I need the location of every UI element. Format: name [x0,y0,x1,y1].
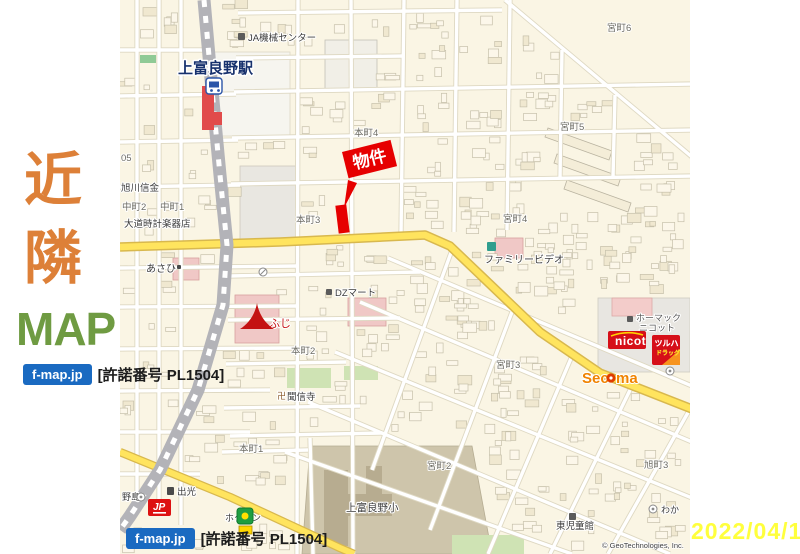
building [535,286,548,296]
poi-label: 旭川信金 [121,182,160,194]
building [238,152,249,158]
building [320,308,326,315]
building [650,281,659,285]
map-area [240,166,298,240]
building [471,216,480,225]
building [266,440,279,445]
building [302,127,309,134]
building [417,284,427,294]
building [534,157,540,161]
building [480,113,488,118]
building [418,114,426,119]
map-symbol-dot [652,508,655,511]
building [310,418,318,427]
license-row-top: f-map.jp [許諾番号 PL1504] [23,364,224,385]
building [623,253,631,262]
poi-icon [627,316,633,322]
district-label: 中町2 [122,201,146,213]
building [495,41,502,46]
poi-label: 東児童館 [556,520,594,532]
building [667,453,675,458]
building [481,16,493,25]
building [608,225,617,232]
street [613,95,615,178]
building [404,200,413,205]
building [446,316,458,320]
building [605,250,616,256]
map-area [140,55,156,63]
building [617,274,629,283]
building [615,488,621,493]
building [274,368,285,377]
license-row-bottom: f-map.jp [許諾番号 PL1504] [126,528,327,549]
nicot-logo-text: nicot [615,334,646,348]
building [508,411,519,416]
building [527,92,534,97]
building [463,323,477,332]
street [236,56,404,58]
building [571,113,580,120]
building [240,351,250,361]
district-label: 宮町3 [496,359,520,371]
poi-label: ホーマック [636,313,681,323]
building [415,299,426,306]
building [526,508,535,515]
building [199,196,210,204]
building [670,418,678,426]
building [335,382,347,386]
building [650,222,656,227]
building [372,20,378,27]
building [637,134,651,143]
building [143,8,157,16]
building [278,25,286,33]
building [621,449,628,453]
building [369,335,378,343]
building [627,213,641,222]
building [645,450,656,458]
building [625,483,631,488]
building [459,384,468,391]
poi-label: ファミリービデオ [484,253,564,266]
building [330,110,343,118]
fmap-badge: f-map.jp [23,364,92,385]
building [228,187,241,196]
building [322,349,329,354]
building [144,85,149,90]
building [403,391,413,399]
building [426,263,436,270]
building [362,349,371,357]
poi-label: DZマート [335,288,376,299]
building [488,57,501,63]
poi-label: 上富良野小 [346,501,399,514]
building [524,113,537,120]
building [538,229,549,233]
poi-icon [569,513,576,520]
building [460,46,468,52]
building [592,407,598,411]
poi-icon [167,487,174,495]
poi-label: JA機械センター [248,32,316,44]
building [149,324,154,330]
building [497,229,506,237]
poi-icon [238,33,245,40]
building [237,368,244,377]
building [658,419,665,424]
building [509,183,521,191]
building [189,173,196,178]
building [417,13,424,22]
building [411,276,424,284]
building [588,213,598,222]
building [144,126,155,135]
building [273,142,285,149]
building [486,183,493,191]
building [435,162,440,171]
building [455,304,467,308]
building [218,476,224,483]
building [300,98,313,105]
building [204,417,214,423]
poi-icon [177,265,181,269]
building [525,400,539,407]
fmap-badge-bottom: f-map.jp [126,528,195,549]
building [185,109,193,116]
building [551,52,559,59]
building [641,152,652,157]
building [261,22,271,31]
neighborhood-map: JA機械センターファミリービデオDZマートあさひ大道時計楽器店旭川信金卍聞信寺出… [120,0,690,554]
building [538,487,546,491]
building [592,107,601,113]
district-label: 本町1 [239,443,263,455]
map-symbol-dot [140,496,143,499]
street [351,0,353,554]
building [471,111,479,119]
title-map-word: MAP [16,306,115,352]
building [678,213,684,222]
building [384,93,395,100]
building [309,153,316,158]
building [602,101,613,106]
building [517,391,524,399]
building [230,40,244,47]
building [447,361,458,366]
building [441,93,446,102]
building [560,494,566,501]
building [631,394,640,401]
building [140,30,153,38]
building [423,123,428,132]
building [563,299,575,306]
building [392,425,398,432]
building [386,75,400,79]
building [652,494,661,503]
building [629,247,636,253]
building [669,163,678,170]
building [670,234,675,240]
building [307,326,317,330]
building [407,213,414,219]
train-station-icon [206,78,222,94]
building [275,476,285,485]
building [201,150,207,154]
building [661,256,667,263]
street [120,306,297,307]
building [161,253,174,258]
street [226,362,346,364]
building [302,202,314,206]
building [338,262,344,266]
building [256,478,265,485]
building [500,392,511,399]
building [257,353,264,359]
district-label: 宮町4 [503,213,527,225]
building [243,412,256,421]
building [648,518,660,523]
building [472,149,485,158]
building [382,343,389,351]
poi-label: あさひ [146,263,176,275]
building [417,24,430,28]
building [563,235,573,244]
building [466,228,478,233]
building [587,102,596,106]
building [587,260,592,270]
building [479,322,487,331]
building [491,214,499,219]
building [437,343,444,353]
building [223,4,235,9]
building [640,274,653,279]
building [435,171,441,176]
building [143,165,151,172]
building [415,202,421,208]
poi-label: 聞信寺 [287,391,316,403]
building [576,233,587,238]
building [538,243,546,247]
building [581,113,587,117]
building [304,147,317,153]
district-label: 旭町3 [644,459,668,471]
building [545,101,553,107]
secoma-logo: ma [616,370,638,387]
building [319,196,325,206]
poi-label: 卍 [277,391,286,401]
building [240,18,246,27]
building [168,400,178,407]
building [274,455,287,463]
building [576,242,586,249]
building [431,221,443,228]
building [485,424,495,433]
building [547,96,555,102]
building [264,143,274,149]
building [634,161,644,170]
building [610,262,620,269]
building [651,144,661,153]
building [490,137,500,143]
building [596,474,602,484]
poi-label: 大道時計楽器店 [124,218,191,230]
building [270,422,275,430]
building [663,247,672,251]
building [496,487,507,494]
building [440,297,450,302]
building [383,27,389,37]
building [461,212,471,219]
building [622,422,627,426]
building [311,107,323,115]
title-kanji-rin: 隣 [24,230,82,288]
poi-icon [326,289,332,295]
building [602,279,607,288]
building [526,238,534,247]
building [510,450,519,459]
building [540,366,546,375]
building [560,270,574,275]
building [467,280,480,286]
building [336,102,345,109]
building [203,406,216,414]
building [403,187,416,193]
date-stamp: 2022/04/18 [691,518,800,545]
building [205,443,218,452]
building [656,531,668,538]
building [496,164,504,169]
building [235,0,248,9]
building [410,412,422,420]
building [567,404,576,413]
building [323,396,336,402]
building [657,184,671,192]
building [545,75,558,84]
building [201,255,215,264]
building [419,402,432,410]
building [586,426,599,433]
district-label: 05 [121,153,132,164]
building [372,104,381,109]
building [470,198,483,208]
district-label: 宮町2 [427,460,451,472]
building [360,396,366,404]
flyer-page: 近 隣 MAP f-map.jp [許諾番号 PL1504] JA機械センターフ… [0,0,800,554]
jp-logo-text: JP [153,502,166,513]
building [669,265,675,274]
building [389,297,397,303]
building [166,327,176,331]
sidebar: 近 隣 MAP [0,0,120,554]
building [456,421,466,428]
district-label: 本町3 [296,214,320,226]
building [548,248,553,253]
building [675,460,681,466]
building [439,46,444,52]
building [429,367,436,376]
building [468,304,478,309]
building [458,332,468,339]
map-area [287,368,331,388]
district-label: 本町4 [354,127,378,139]
street [560,50,562,178]
building [516,498,528,505]
building [427,200,438,208]
secoma-logo: Sec [582,370,609,387]
building [397,290,404,295]
building [512,524,523,530]
building [501,408,506,417]
district-label: 宮町6 [607,22,631,34]
building [675,525,685,531]
building [673,240,684,249]
building [334,25,344,33]
building [439,103,450,108]
building [327,249,338,255]
building [125,78,136,86]
building [425,211,437,218]
building [491,110,502,118]
building [488,49,498,58]
building [546,277,553,283]
building [622,431,629,436]
building [467,121,481,129]
building [572,541,584,550]
building [527,357,538,363]
building [386,335,399,340]
station-label: 上富良野駅 [178,59,254,77]
secoma-logo-dot-center [609,376,612,379]
building [607,393,620,399]
building [416,192,426,196]
building [398,412,404,418]
building [663,222,675,230]
poi-label: わか [661,505,679,515]
street [297,0,298,554]
building [491,393,497,401]
district-label: 宮町5 [560,121,584,133]
building [641,184,652,190]
building [490,455,502,465]
building [205,205,217,209]
building [533,389,540,398]
building [148,209,157,215]
building [523,36,529,46]
tsuruha-logo-text: ツルハ [655,339,679,348]
building [374,256,386,264]
building [228,380,240,387]
building [567,456,578,464]
building [559,307,566,314]
street [224,406,360,408]
building [316,332,326,342]
building [547,266,557,274]
building [357,330,365,336]
building [419,53,425,58]
building [277,290,287,295]
building [415,306,424,312]
poi-icon [487,242,496,251]
building [521,162,535,170]
building [120,408,128,414]
building [442,32,448,38]
building [215,435,224,442]
building [160,281,172,287]
building [614,493,619,499]
building [472,252,481,258]
building [644,207,657,217]
building [569,279,574,288]
